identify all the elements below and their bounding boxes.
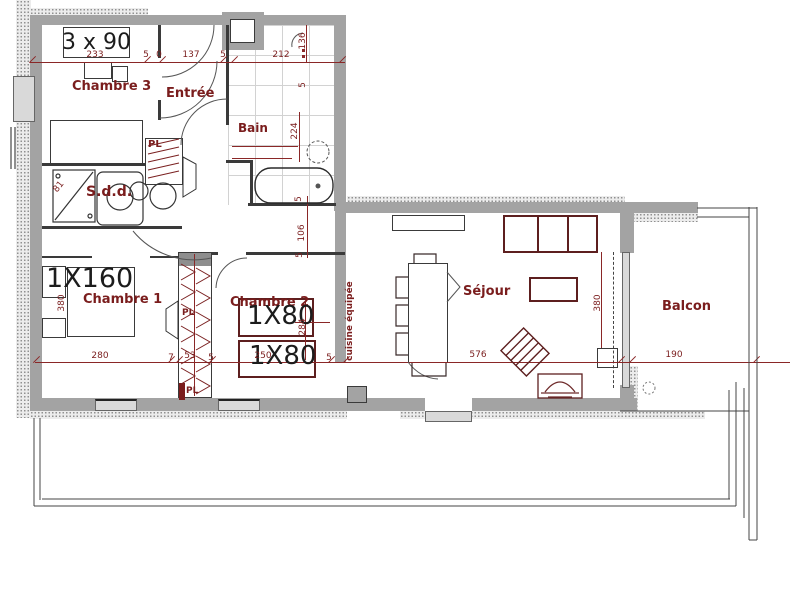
dim-5-top-b: 5 bbox=[218, 50, 228, 60]
dim-284: 284 bbox=[298, 316, 308, 338]
room-label-sdd: S.d.d. bbox=[86, 184, 132, 200]
bed-chambre1-label: 1X160 bbox=[46, 263, 133, 294]
dim-53: 53 bbox=[181, 351, 199, 361]
dim-5-v2: 5 bbox=[294, 194, 304, 204]
dim-0: 0 bbox=[154, 50, 164, 60]
plant-decor bbox=[538, 374, 582, 398]
dim-5-bottom-b: 5 bbox=[324, 353, 334, 363]
closet-label-pl-top: PL bbox=[148, 139, 162, 150]
room-label-chambre3: Chambre 3 bbox=[72, 79, 151, 94]
dim-212: 212 bbox=[265, 50, 297, 60]
dim-137: 137 bbox=[176, 50, 206, 60]
dim-5-v1: 5 bbox=[298, 80, 308, 90]
room-label-sejour: Séjour bbox=[463, 284, 510, 299]
room-label-cuisine: cuisine équipée bbox=[345, 281, 355, 361]
dim-5-bottom-a: 5 bbox=[206, 353, 216, 363]
terrace-outline bbox=[34, 382, 744, 518]
dim-576: 576 bbox=[462, 350, 494, 360]
dim-5-v3: 5 bbox=[295, 250, 305, 260]
dim-224: 224 bbox=[290, 120, 300, 142]
closet-middle-hatching bbox=[181, 264, 210, 394]
dim-250: 250 bbox=[248, 351, 278, 361]
wc-fixtures bbox=[130, 182, 176, 209]
bain-sink bbox=[307, 141, 329, 163]
dim-5-top-a: 5 bbox=[141, 50, 151, 60]
dim-7: 7 bbox=[166, 353, 176, 363]
room-label-chambre1: Chambre 1 bbox=[83, 292, 162, 307]
dim-280: 280 bbox=[84, 351, 116, 361]
room-label-bain: Bain bbox=[238, 121, 268, 135]
room-label-entree: Entrée bbox=[166, 86, 214, 101]
dim-106: 106 bbox=[297, 222, 307, 244]
armchair bbox=[501, 328, 549, 376]
dining-chairs bbox=[396, 254, 446, 376]
dim-380-left: 380 bbox=[57, 291, 67, 315]
floor-plan: 3 x 90 bbox=[0, 0, 800, 600]
dim-380-right: 380 bbox=[593, 291, 603, 315]
closet-label-pl-mid-b: PL bbox=[186, 386, 198, 396]
dim-190: 190 bbox=[658, 350, 690, 360]
closet-label-pl-mid-a: PL bbox=[182, 308, 194, 318]
room-label-balcon: Balcon bbox=[662, 299, 711, 314]
left-exterior-window-lines bbox=[11, 127, 15, 169]
balcony-drain-circle bbox=[643, 382, 655, 394]
dim-233: 233 bbox=[80, 50, 110, 60]
dim-136: 136 bbox=[298, 31, 308, 51]
